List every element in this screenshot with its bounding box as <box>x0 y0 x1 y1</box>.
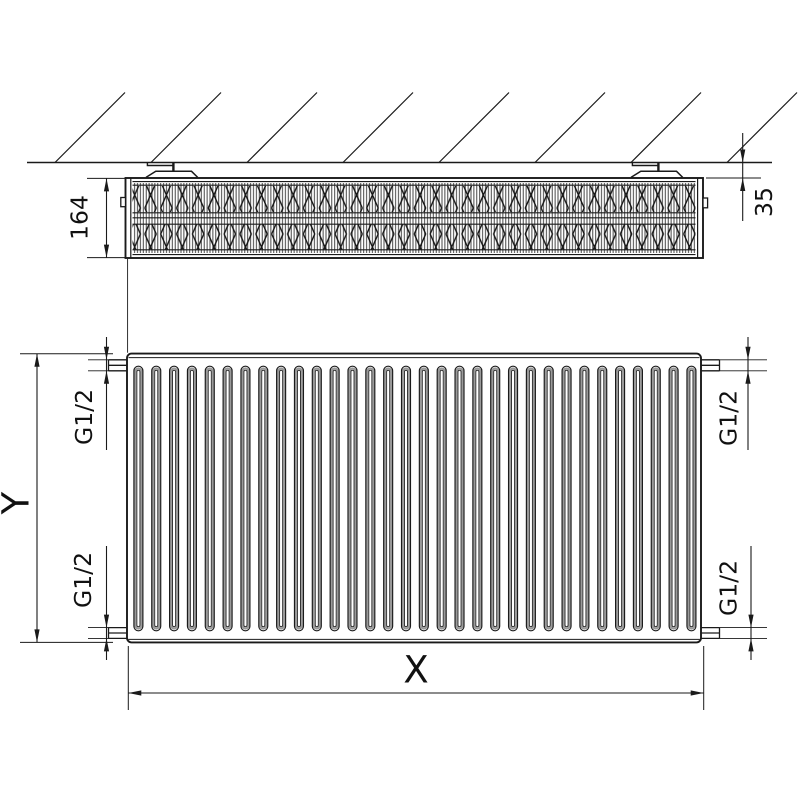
groove <box>223 366 232 631</box>
dimension-depth-164: 164 <box>66 178 126 257</box>
dimension-connection-bottom-right: G1/2 <box>715 546 768 660</box>
conn-top-left-label: G1/2 <box>70 389 98 445</box>
groove <box>312 366 321 631</box>
radiator-front-view <box>109 354 720 643</box>
groove <box>205 366 214 631</box>
groove <box>402 366 411 631</box>
side-connection-right <box>703 198 708 208</box>
wall-clearance-label: 35 <box>750 187 778 217</box>
groove <box>437 366 446 631</box>
connection-stub-top-left <box>109 360 128 371</box>
conn-top-right-label: G1/2 <box>715 390 743 446</box>
groove <box>348 366 357 631</box>
groove <box>509 366 518 631</box>
groove <box>187 366 196 631</box>
groove <box>134 366 143 631</box>
dimension-wall-clearance-35: 35 <box>706 133 778 221</box>
groove <box>366 366 375 631</box>
radiator-drawing-canvas: 164 35 G1/2 G1/2 G1/2 <box>0 0 800 800</box>
groove <box>473 366 482 631</box>
groove <box>669 366 678 631</box>
conn-bottom-right-label: G1/2 <box>715 560 743 616</box>
convector-fins <box>133 182 696 255</box>
height-axis-label: Y <box>0 491 38 515</box>
dimension-connection-top-right: G1/2 <box>715 337 768 450</box>
connection-stub-bottom-left <box>109 628 128 639</box>
width-axis-label: X <box>403 649 428 692</box>
groove <box>526 366 535 631</box>
wall-hatch-lines <box>55 93 797 163</box>
groove <box>277 366 286 631</box>
groove <box>419 366 428 631</box>
groove <box>152 366 161 631</box>
side-connection-left <box>121 198 126 207</box>
depth-label: 164 <box>66 195 94 240</box>
conn-bottom-left-label: G1/2 <box>69 552 97 608</box>
groove <box>491 366 500 631</box>
groove <box>616 366 625 631</box>
wall-hatching <box>27 93 797 163</box>
groove <box>170 366 179 631</box>
groove <box>598 366 607 631</box>
groove <box>384 366 393 631</box>
dimension-width-x: X <box>128 646 703 710</box>
groove <box>544 366 553 631</box>
groove <box>294 366 303 631</box>
groove <box>687 366 696 631</box>
mounting-bracket-left <box>146 163 198 178</box>
groove <box>330 366 339 631</box>
groove <box>651 366 660 631</box>
connection-stub-top-right <box>701 360 720 371</box>
groove <box>580 366 589 631</box>
mounting-bracket-right <box>631 163 683 178</box>
groove <box>633 366 642 631</box>
connection-stub-bottom-right <box>701 628 720 639</box>
radiator-technical-drawing: 164 35 G1/2 G1/2 G1/2 <box>0 0 800 800</box>
groove <box>455 366 464 631</box>
groove <box>241 366 250 631</box>
groove <box>562 366 571 631</box>
groove <box>259 366 268 631</box>
radiator-top-view <box>121 163 708 259</box>
